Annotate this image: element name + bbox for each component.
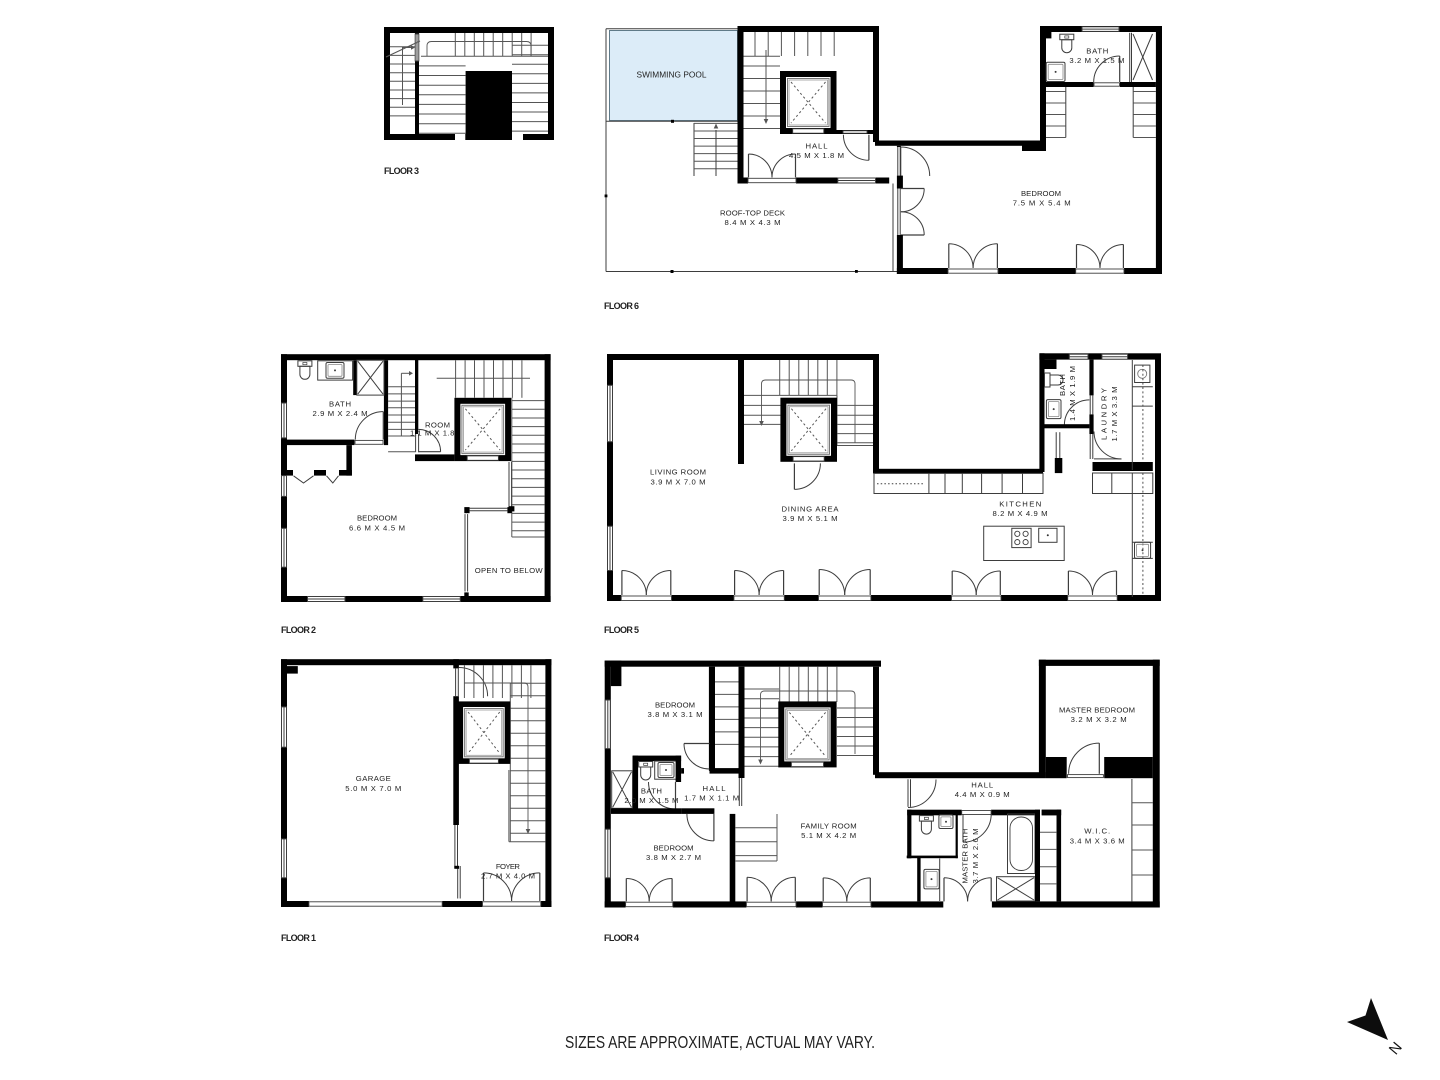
svg-text:BEDROOM: BEDROOM [357, 514, 397, 523]
svg-text:FLOOR 4: FLOOR 4 [604, 933, 639, 943]
svg-text:1.7 M X 1.1 M: 1.7 M X 1.1 M [684, 794, 739, 803]
svg-text:3.7 M X 2.6 M: 3.7 M X 2.6 M [971, 829, 980, 884]
svg-text:W.I.C.: W.I.C. [1084, 827, 1110, 836]
svg-text:6.6 M X 4.5 M: 6.6 M X 4.5 M [349, 524, 405, 533]
svg-text:HALL: HALL [703, 784, 727, 793]
svg-text:LIVING ROOM: LIVING ROOM [650, 468, 706, 477]
svg-text:BATH: BATH [1058, 374, 1067, 396]
svg-text:SWIMMING POOL: SWIMMING POOL [637, 70, 707, 80]
svg-text:BEDROOM: BEDROOM [1021, 189, 1061, 198]
svg-text:BEDROOM: BEDROOM [655, 701, 695, 710]
svg-text:8.2 M X 4.9 M: 8.2 M X 4.9 M [993, 509, 1048, 518]
svg-text:8.4 M X 4.3 M: 8.4 M X 4.3 M [725, 218, 781, 227]
svg-text:1.4 M X 1.9 M: 1.4 M X 1.9 M [1068, 366, 1077, 421]
svg-text:KITCHEN: KITCHEN [999, 500, 1041, 509]
svg-text:5.1 M X 4.2 M: 5.1 M X 4.2 M [801, 831, 856, 840]
svg-text:DINING AREA: DINING AREA [782, 505, 840, 514]
svg-text:3.9 M X 5.1 M: 3.9 M X 5.1 M [783, 514, 838, 523]
svg-text:FLOOR 5: FLOOR 5 [604, 625, 639, 635]
svg-text:2.7 M X 4.0 M: 2.7 M X 4.0 M [481, 872, 535, 881]
svg-text:3.4 M X 3.6 M: 3.4 M X 3.6 M [1070, 837, 1125, 846]
svg-text:1.7 M X 3.3 M: 1.7 M X 3.3 M [1110, 387, 1119, 442]
svg-text:BATH: BATH [641, 787, 662, 796]
svg-text:FLOOR 1: FLOOR 1 [281, 933, 316, 943]
svg-text:3.9 M X 7.0 M: 3.9 M X 7.0 M [651, 477, 706, 486]
svg-text:OPEN TO BELOW: OPEN TO BELOW [475, 566, 544, 575]
svg-text:HALL: HALL [806, 142, 829, 151]
svg-text:GARAGE: GARAGE [356, 774, 391, 783]
svg-text:LAUNDRY: LAUNDRY [1100, 388, 1109, 440]
svg-text:MASTER BEDROOM: MASTER BEDROOM [1059, 705, 1135, 714]
svg-text:FLOOR 3: FLOOR 3 [384, 166, 419, 176]
svg-text:BEDROOM: BEDROOM [654, 844, 694, 853]
svg-text:FAMILY ROOM: FAMILY ROOM [801, 822, 857, 831]
svg-text:4.5 M X 1.8 M: 4.5 M X 1.8 M [789, 151, 844, 160]
svg-text:5.0 M X 7.0 M: 5.0 M X 7.0 M [345, 784, 401, 793]
svg-text:SIZES ARE APPROXIMATE, ACTUAL: SIZES ARE APPROXIMATE, ACTUAL MAY VARY. [565, 1032, 875, 1052]
svg-text:MASTER BATH: MASTER BATH [961, 829, 970, 884]
svg-text:3.8 M X 3.1 M: 3.8 M X 3.1 M [648, 710, 703, 719]
svg-text:FLOOR 2: FLOOR 2 [281, 625, 316, 635]
svg-text:4.4 M X 0.9 M: 4.4 M X 0.9 M [955, 790, 1010, 799]
svg-text:HALL: HALL [971, 780, 994, 789]
svg-text:7.5 M X 5.4 M: 7.5 M X 5.4 M [1013, 199, 1071, 208]
svg-text:2.9 M X 2.4 M: 2.9 M X 2.4 M [313, 409, 368, 418]
svg-text:2.0 M X 1.5 M: 2.0 M X 1.5 M [624, 796, 678, 805]
svg-text:FOYER: FOYER [496, 862, 520, 871]
svg-text:3.2 M X 1.5 M: 3.2 M X 1.5 M [1069, 56, 1124, 65]
svg-text:ROOF-TOP DECK: ROOF-TOP DECK [720, 209, 786, 218]
svg-text:BATH: BATH [1086, 47, 1108, 56]
svg-text:FLOOR 6: FLOOR 6 [604, 301, 639, 311]
svg-text:3.8 M X 2.7 M: 3.8 M X 2.7 M [646, 853, 701, 862]
svg-text:3.2 M X 3.2 M: 3.2 M X 3.2 M [1071, 715, 1127, 724]
svg-text:BATH: BATH [329, 400, 351, 409]
